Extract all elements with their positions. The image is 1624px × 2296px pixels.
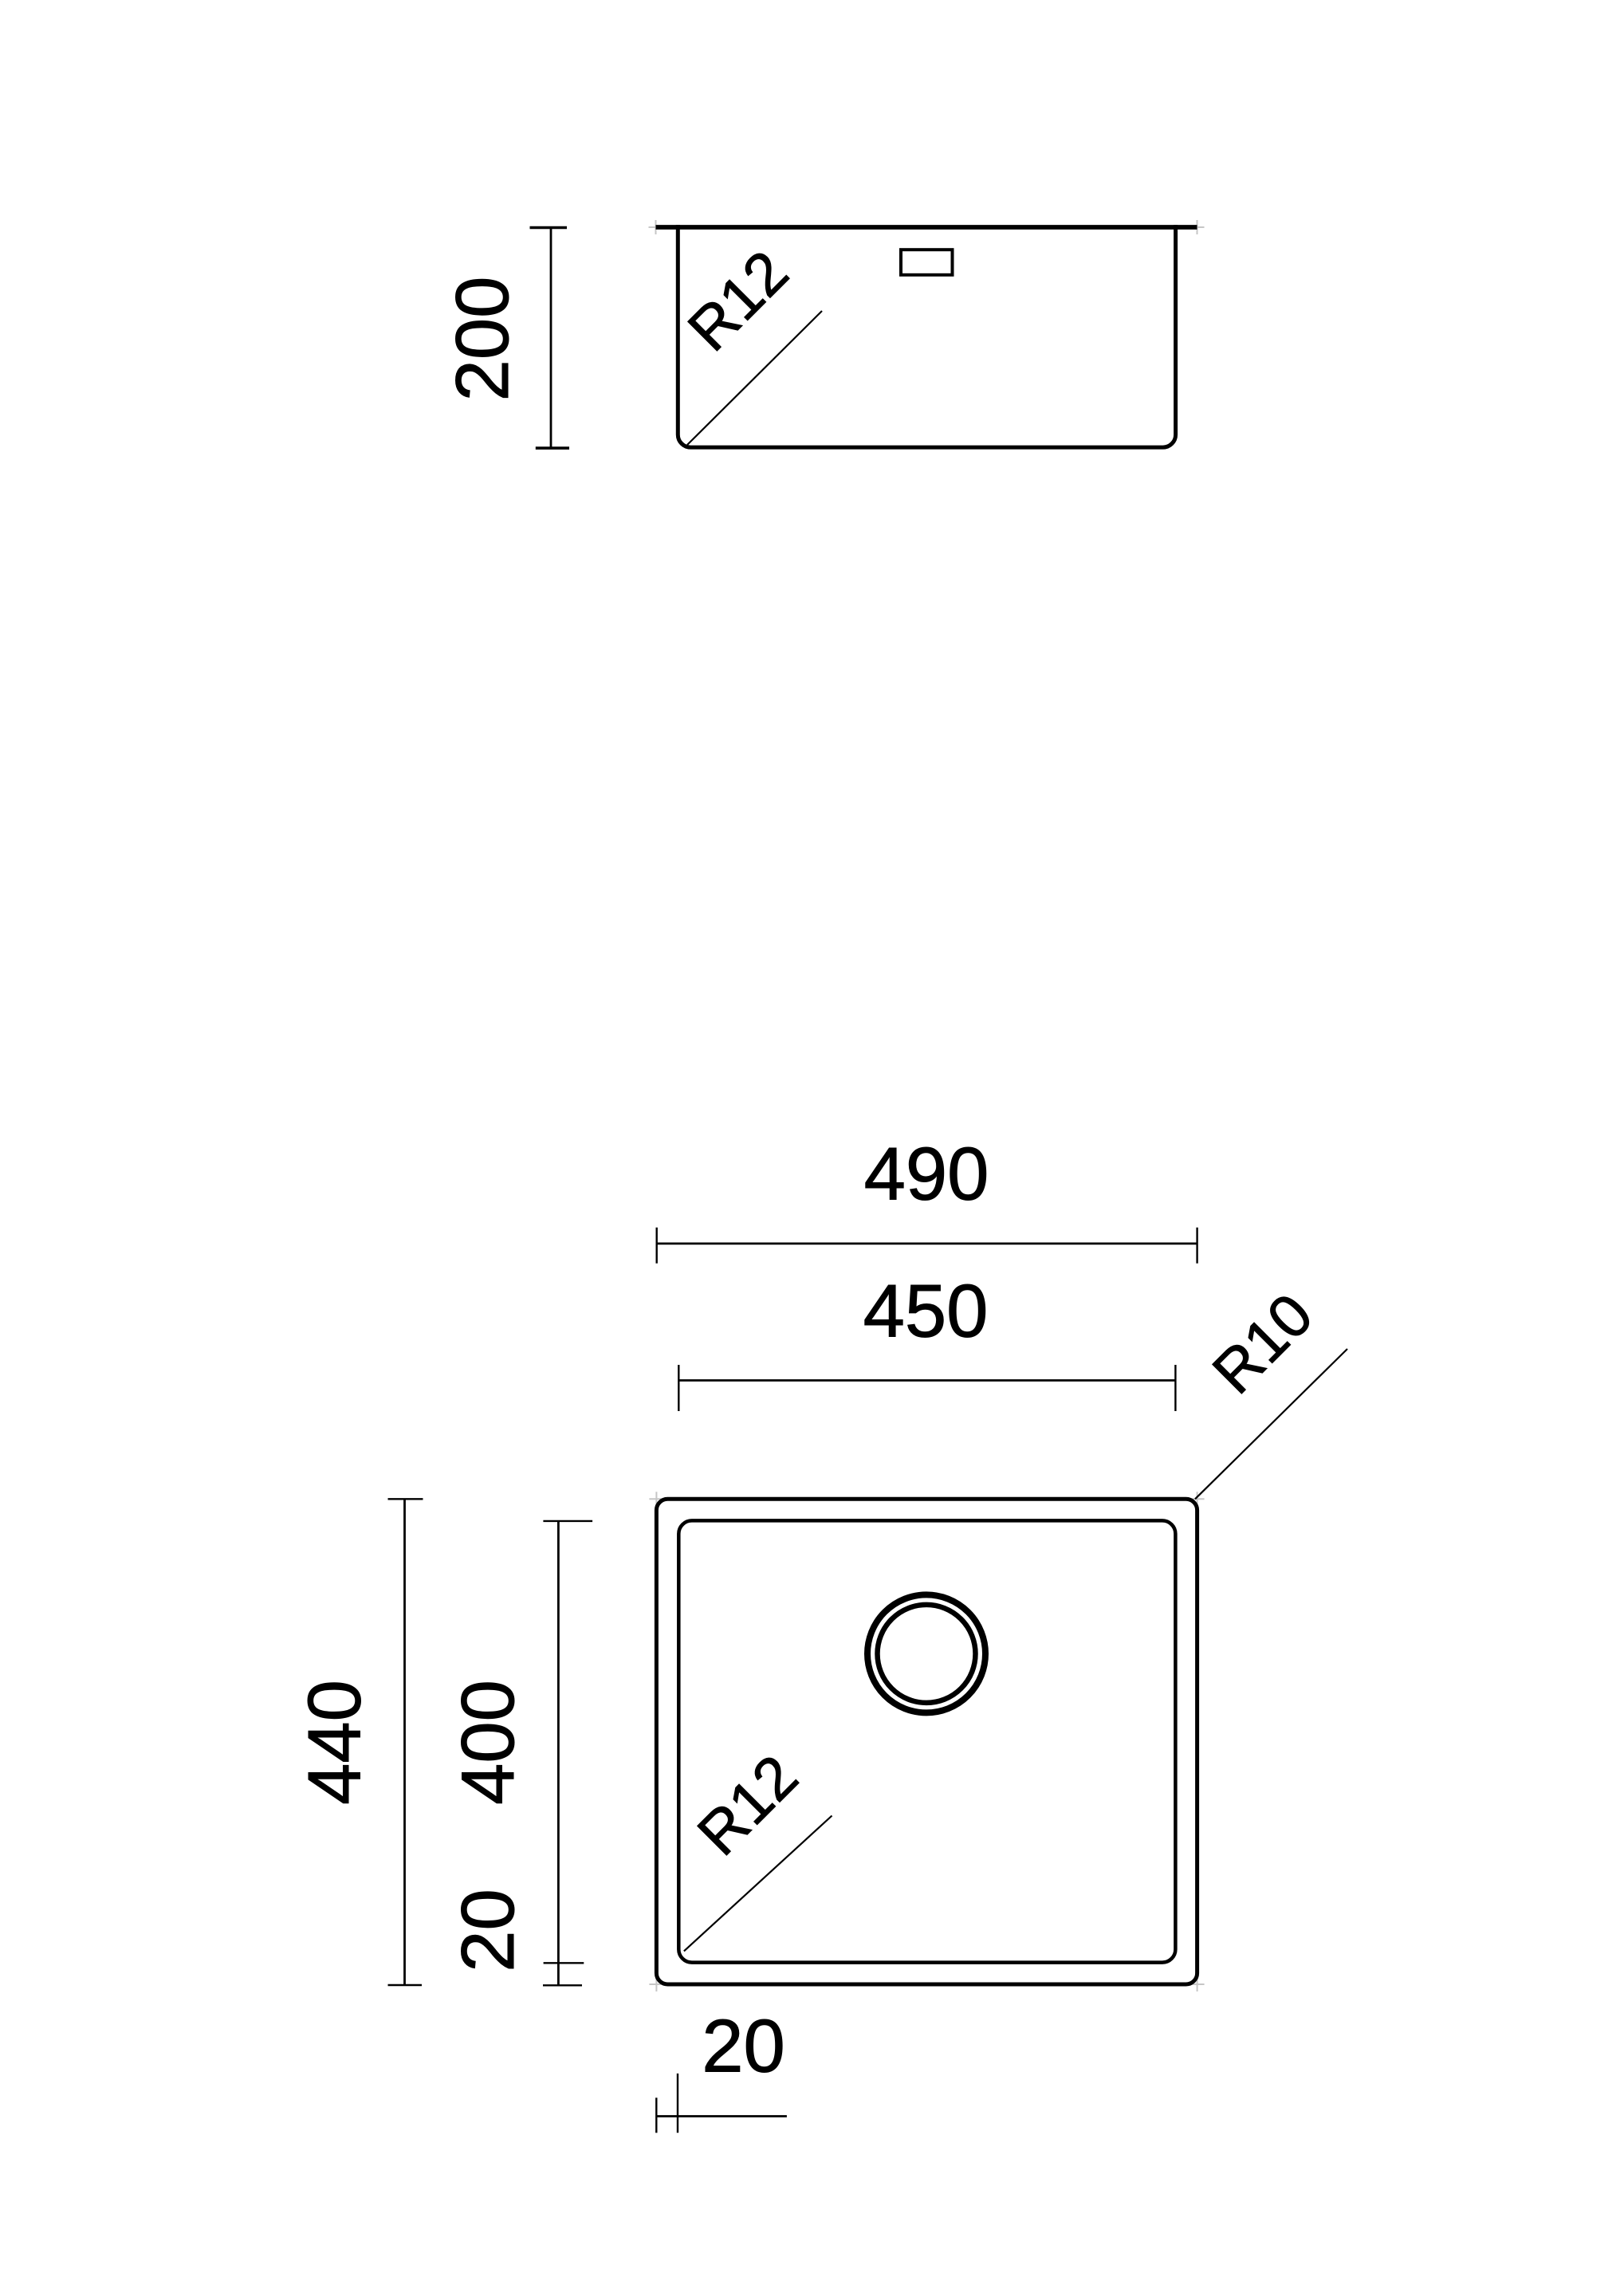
svg-text:20: 20 <box>446 1889 529 1972</box>
svg-text:440: 440 <box>293 1680 376 1805</box>
svg-text:490: 490 <box>864 1132 989 1216</box>
svg-text:R12: R12 <box>675 238 800 363</box>
svg-text:200: 200 <box>440 277 524 402</box>
svg-text:R10: R10 <box>1200 1280 1325 1406</box>
svg-text:400: 400 <box>446 1680 529 1805</box>
svg-text:20: 20 <box>702 2004 785 2088</box>
svg-text:450: 450 <box>863 1269 989 1353</box>
svg-text:R12: R12 <box>685 1742 810 1867</box>
